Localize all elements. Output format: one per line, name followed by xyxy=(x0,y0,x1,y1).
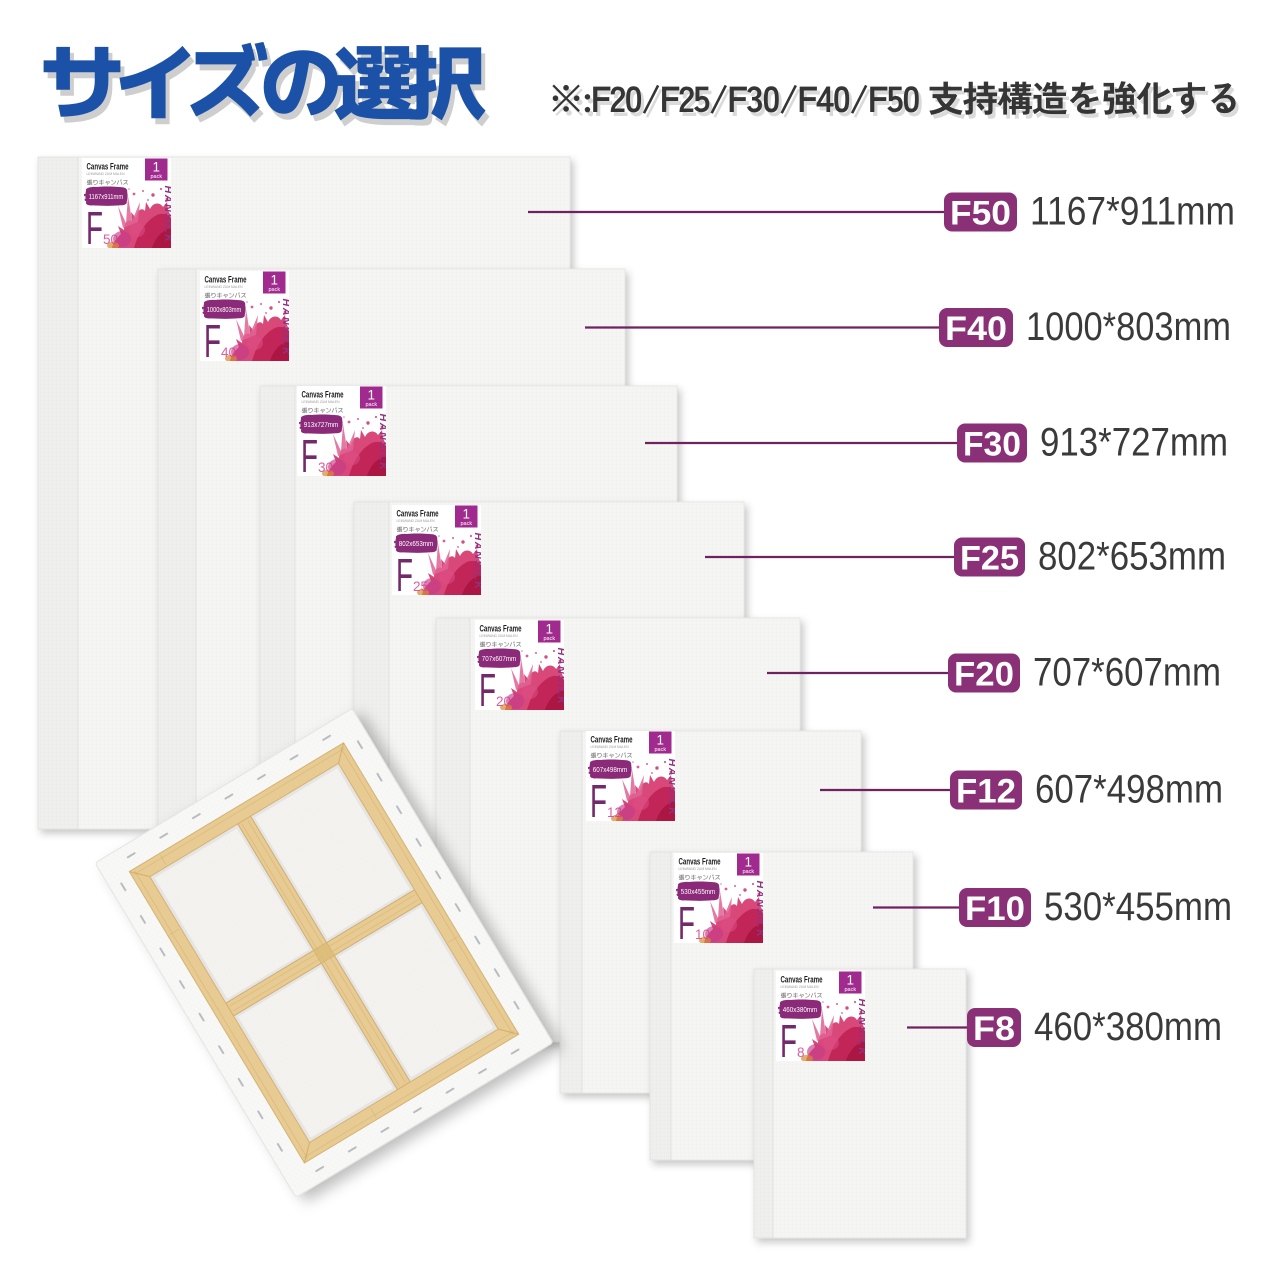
svg-text:460*380mm: 460*380mm xyxy=(1034,1005,1222,1049)
svg-text:913*727mm: 913*727mm xyxy=(1040,421,1228,465)
svg-text:802*653mm: 802*653mm xyxy=(1038,535,1226,579)
svg-text:F25: F25 xyxy=(960,540,1019,578)
svg-text:30: 30 xyxy=(318,460,333,475)
svg-text:F: F xyxy=(396,549,413,601)
svg-text:1167*911mm: 1167*911mm xyxy=(1030,190,1235,234)
svg-text:10: 10 xyxy=(695,927,710,942)
svg-text:F12: F12 xyxy=(956,773,1016,811)
svg-text:530*455mm: 530*455mm xyxy=(1044,885,1232,929)
svg-text:F40: F40 xyxy=(945,310,1007,348)
svg-text:F: F xyxy=(590,775,607,827)
svg-text:913x727mm: 913x727mm xyxy=(304,422,339,429)
svg-text:1000*803mm: 1000*803mm xyxy=(1026,305,1231,349)
svg-text:607*498mm: 607*498mm xyxy=(1035,768,1223,812)
svg-text:25: 25 xyxy=(413,579,428,594)
svg-text:F8: F8 xyxy=(973,1010,1015,1048)
svg-text:40: 40 xyxy=(221,345,236,360)
svg-text:F10: F10 xyxy=(965,890,1025,928)
svg-text:1000x803mm: 1000x803mm xyxy=(207,307,242,314)
svg-text:802x653mm: 802x653mm xyxy=(399,541,434,548)
svg-text:50: 50 xyxy=(103,232,118,247)
svg-text:460x380mm: 460x380mm xyxy=(783,1007,818,1014)
svg-text:20: 20 xyxy=(496,694,511,709)
svg-text:F50: F50 xyxy=(950,195,1011,233)
svg-text:F: F xyxy=(86,202,103,254)
svg-text:F: F xyxy=(678,897,695,949)
svg-text:F20: F20 xyxy=(954,656,1014,694)
svg-text:707x607mm: 707x607mm xyxy=(482,656,517,663)
svg-text:F: F xyxy=(479,664,496,716)
svg-text:F: F xyxy=(780,1015,797,1067)
svg-text:F: F xyxy=(301,430,318,482)
svg-text:607x498mm: 607x498mm xyxy=(593,767,628,774)
svg-text:12: 12 xyxy=(607,805,622,820)
svg-text:707*607mm: 707*607mm xyxy=(1033,651,1221,695)
svg-text:F30: F30 xyxy=(963,426,1021,464)
svg-text:1167x911mm: 1167x911mm xyxy=(89,194,124,201)
svg-text:8: 8 xyxy=(797,1045,805,1060)
svg-text:F: F xyxy=(204,315,221,367)
svg-text:530x455mm: 530x455mm xyxy=(681,889,716,896)
